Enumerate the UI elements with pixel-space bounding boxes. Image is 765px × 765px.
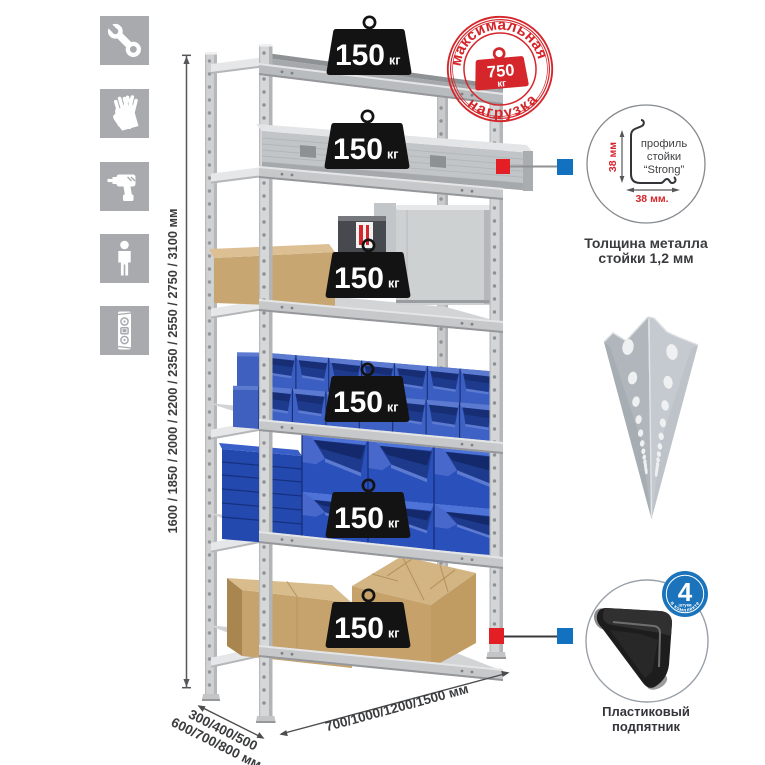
svg-text:кг: кг [389,54,400,68]
svg-text:Пластиковый: Пластиковый [602,704,690,719]
svg-text:кг: кг [387,401,398,415]
svg-text:38 мм.: 38 мм. [635,193,668,205]
svg-text:кг: кг [497,78,507,90]
svg-text:кг: кг [388,517,399,531]
svg-text:150: 150 [334,262,384,295]
svg-text:150: 150 [335,39,385,72]
svg-text:“Strong”: “Strong” [644,164,685,176]
svg-text:1600 / 1850 / 2000 / 2200 / 23: 1600 / 1850 / 2000 / 2200 / 2350 / 2550 … [165,209,180,534]
svg-text:150: 150 [334,502,384,535]
svg-text:Толщина металла: Толщина металла [584,235,708,251]
svg-text:стойки: стойки [647,151,681,163]
svg-text:150: 150 [333,386,383,419]
svg-text:кг: кг [388,277,399,291]
svg-text:150: 150 [334,612,384,645]
svg-text:кг: кг [387,148,398,162]
svg-text:38 мм: 38 мм [607,142,619,172]
svg-text:кг: кг [388,627,399,641]
svg-text:стойки 1,2 мм: стойки 1,2 мм [598,250,693,266]
svg-text:профиль: профиль [641,138,687,150]
svg-text:150: 150 [333,133,383,166]
svg-text:подпятник: подпятник [612,719,681,734]
